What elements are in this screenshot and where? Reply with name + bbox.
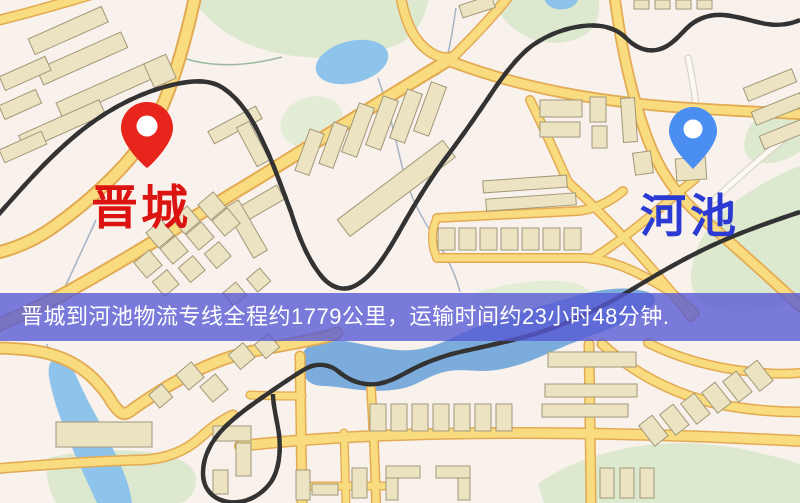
origin-label: 晋城	[91, 169, 191, 238]
map-canvas[interactable]	[0, 0, 800, 503]
buildings-layer	[0, 0, 800, 500]
map-viewport: 晋城 河池 晋城到河池物流专线全程约1779公里，运输时间约23小时48分钟.	[0, 0, 800, 503]
route-info-text: 晋城到河池物流专线全程约1779公里，运输时间约23小时48分钟.	[21, 304, 670, 329]
route-info-banner: 晋城到河池物流专线全程约1779公里，运输时间约23小时48分钟.	[0, 293, 800, 341]
destination-label: 河池	[640, 180, 740, 246]
